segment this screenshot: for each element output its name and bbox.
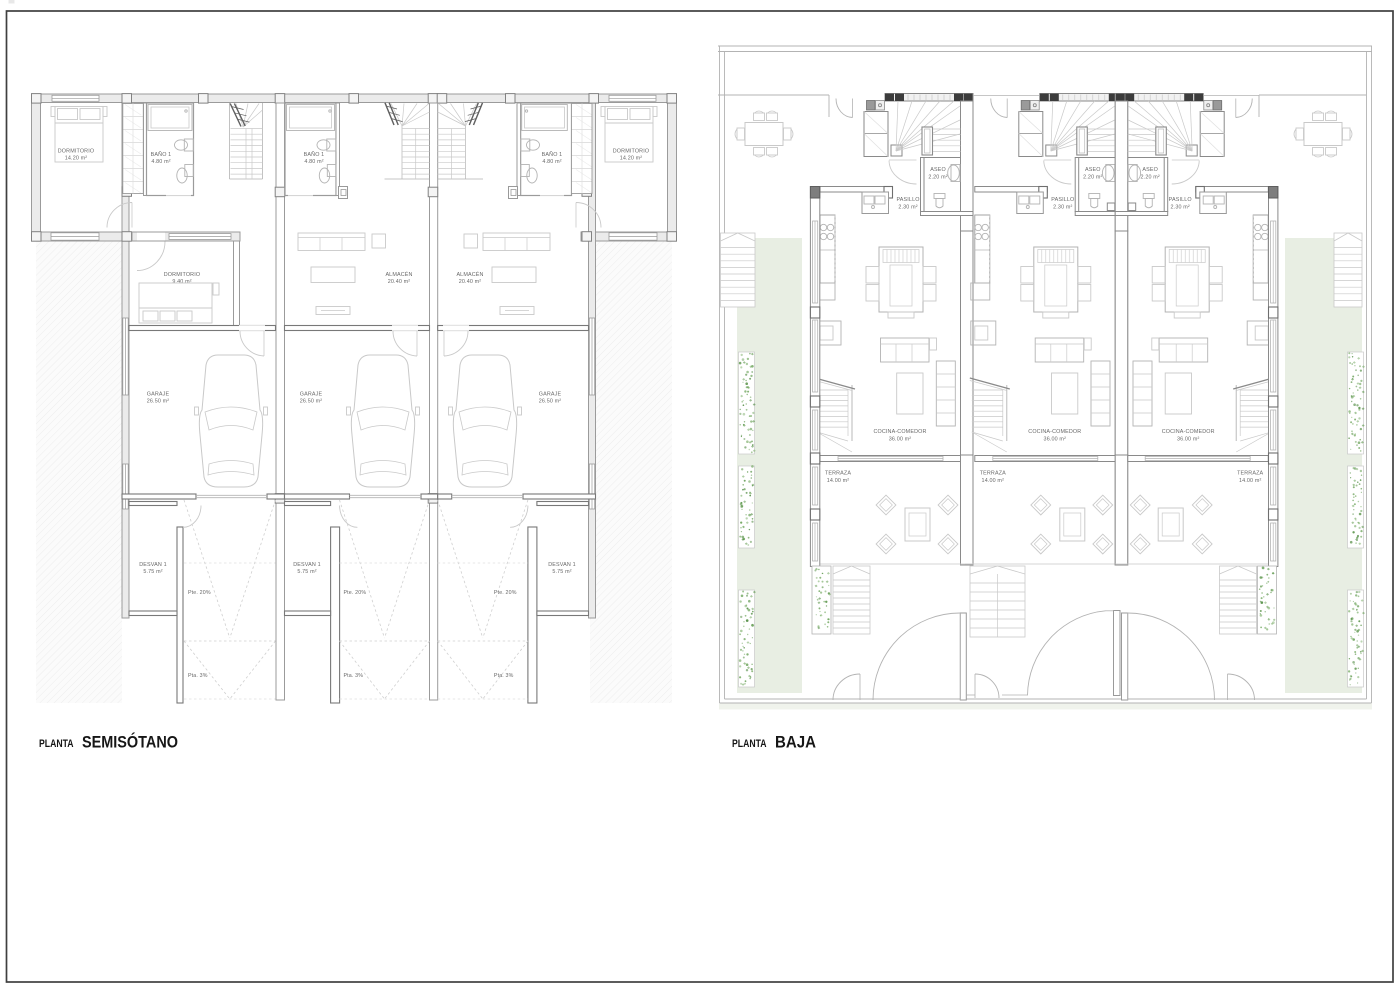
svg-text:Pta. 3%: Pta. 3% (494, 673, 514, 679)
svg-text:5.75 m²: 5.75 m² (143, 569, 162, 575)
svg-text:14.00 m²: 14.00 m² (827, 478, 850, 484)
svg-text:14.20 m²: 14.20 m² (65, 156, 88, 162)
svg-text:ALMACÉN: ALMACÉN (456, 271, 483, 278)
svg-text:BAÑO 1: BAÑO 1 (542, 151, 563, 158)
svg-text:GARAJE: GARAJE (539, 392, 562, 398)
svg-text:36.00 m²: 36.00 m² (1044, 437, 1067, 443)
svg-text:Pte. 20%: Pte. 20% (494, 590, 517, 596)
svg-text:PASILLO: PASILLO (896, 197, 919, 203)
svg-text:PASILLO: PASILLO (1169, 197, 1192, 203)
svg-text:Pta. 3%: Pta. 3% (344, 673, 364, 679)
svg-text:2.20 m²: 2.20 m² (928, 175, 947, 181)
svg-text:20.40 m²: 20.40 m² (388, 279, 411, 285)
svg-text:DORMITORIO: DORMITORIO (58, 149, 94, 155)
svg-text:20.40 m²: 20.40 m² (459, 279, 482, 285)
svg-text:GARAJE: GARAJE (300, 392, 323, 398)
svg-text:2.30 m²: 2.30 m² (1053, 205, 1072, 211)
svg-text:GARAJE: GARAJE (147, 392, 170, 398)
svg-text:ASEO: ASEO (1142, 167, 1158, 173)
svg-text:4.80 m²: 4.80 m² (542, 159, 561, 165)
svg-text:2.20 m²: 2.20 m² (1083, 175, 1102, 181)
svg-text:14.00 m²: 14.00 m² (1239, 478, 1262, 484)
svg-text:36.00 m²: 36.00 m² (889, 437, 912, 443)
svg-text:DESVAN 1: DESVAN 1 (139, 562, 166, 568)
svg-text:TERRAZA: TERRAZA (1237, 471, 1263, 477)
svg-text:BAÑO 1: BAÑO 1 (304, 151, 325, 158)
svg-text:BAÑO 1: BAÑO 1 (151, 151, 172, 158)
svg-text:PLANTA: PLANTA (732, 738, 767, 750)
svg-text:PLANTA: PLANTA (39, 738, 74, 750)
svg-text:9.40 m²: 9.40 m² (172, 279, 191, 285)
svg-text:26.50 m²: 26.50 m² (300, 399, 323, 405)
svg-text:DORMITORIO: DORMITORIO (164, 272, 200, 278)
svg-text:COCINA-COMEDOR: COCINA-COMEDOR (1162, 429, 1215, 435)
svg-text:Pte. 20%: Pte. 20% (188, 590, 211, 596)
svg-text:ASEO: ASEO (930, 167, 946, 173)
svg-text:4.80 m²: 4.80 m² (151, 159, 170, 165)
svg-text:ASEO: ASEO (1085, 167, 1101, 173)
svg-text:14.20 m²: 14.20 m² (620, 156, 643, 162)
svg-text:COCINA-COMEDOR: COCINA-COMEDOR (1028, 429, 1081, 435)
svg-text:SEMISÓTANO: SEMISÓTANO (82, 733, 178, 752)
svg-text:DESVAN 1: DESVAN 1 (293, 562, 320, 568)
svg-text:Pte. 20%: Pte. 20% (344, 590, 367, 596)
svg-text:26.50 m²: 26.50 m² (147, 399, 170, 405)
svg-text:DORMITORIO: DORMITORIO (613, 149, 649, 155)
svg-text:36.00 m²: 36.00 m² (1177, 437, 1200, 443)
svg-text:DESVAN 1: DESVAN 1 (548, 562, 575, 568)
svg-text:PASILLO: PASILLO (1051, 197, 1074, 203)
svg-text:TERRAZA: TERRAZA (825, 471, 851, 477)
svg-text:4.80 m²: 4.80 m² (304, 159, 323, 165)
svg-text:2.20 m²: 2.20 m² (1141, 175, 1160, 181)
svg-text:ALMACÉN: ALMACÉN (385, 271, 412, 278)
svg-text:26.50 m²: 26.50 m² (539, 399, 562, 405)
svg-text:5.75 m²: 5.75 m² (297, 569, 316, 575)
svg-text:14.00 m²: 14.00 m² (982, 478, 1005, 484)
svg-text:2.30 m²: 2.30 m² (1171, 205, 1190, 211)
svg-text:COCINA-COMEDOR: COCINA-COMEDOR (873, 429, 926, 435)
svg-text:2.30 m²: 2.30 m² (898, 205, 917, 211)
svg-text:TERRAZA: TERRAZA (980, 471, 1006, 477)
svg-text:5.75 m²: 5.75 m² (552, 569, 571, 575)
svg-text:BAJA: BAJA (775, 734, 816, 752)
svg-text:Pta. 3%: Pta. 3% (188, 673, 208, 679)
